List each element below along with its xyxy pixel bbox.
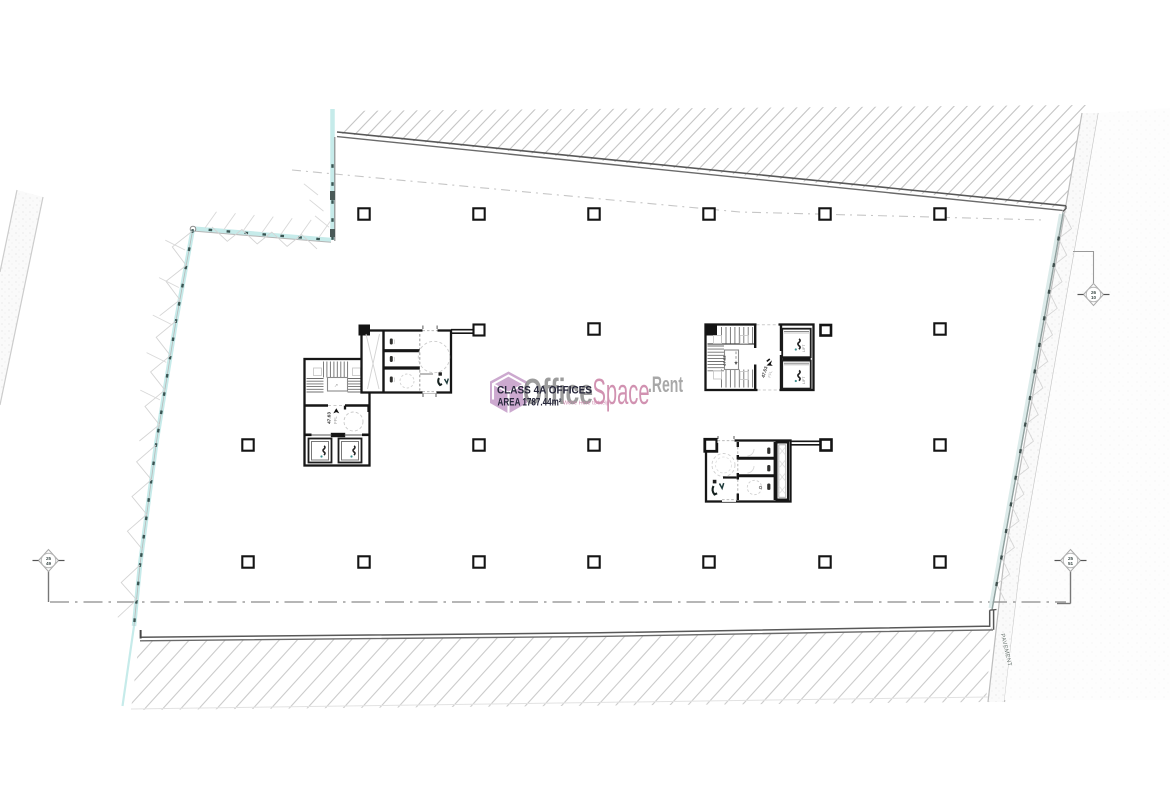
- svg-text:We're Here to Help!: We're Here to Help!: [563, 401, 611, 407]
- svg-text:LIFT: LIFT: [802, 376, 806, 384]
- svg-text:CLASS 4A OFFICES: CLASS 4A OFFICES: [497, 385, 592, 397]
- svg-text:10: 10: [1091, 295, 1097, 300]
- svg-text:AREA 1787.44m²: AREA 1787.44m²: [498, 397, 562, 409]
- svg-text:47.63: 47.63: [722, 355, 727, 366]
- svg-text:LIFT: LIFT: [802, 344, 806, 352]
- svg-text:.Rent: .Rent: [648, 372, 683, 397]
- svg-text:49: 49: [46, 561, 52, 566]
- svg-text:47.63: 47.63: [327, 412, 333, 424]
- svg-text:FFL: FFL: [333, 416, 338, 424]
- svg-text:51: 51: [1068, 561, 1074, 566]
- svg-text:↗: ↗: [334, 383, 338, 389]
